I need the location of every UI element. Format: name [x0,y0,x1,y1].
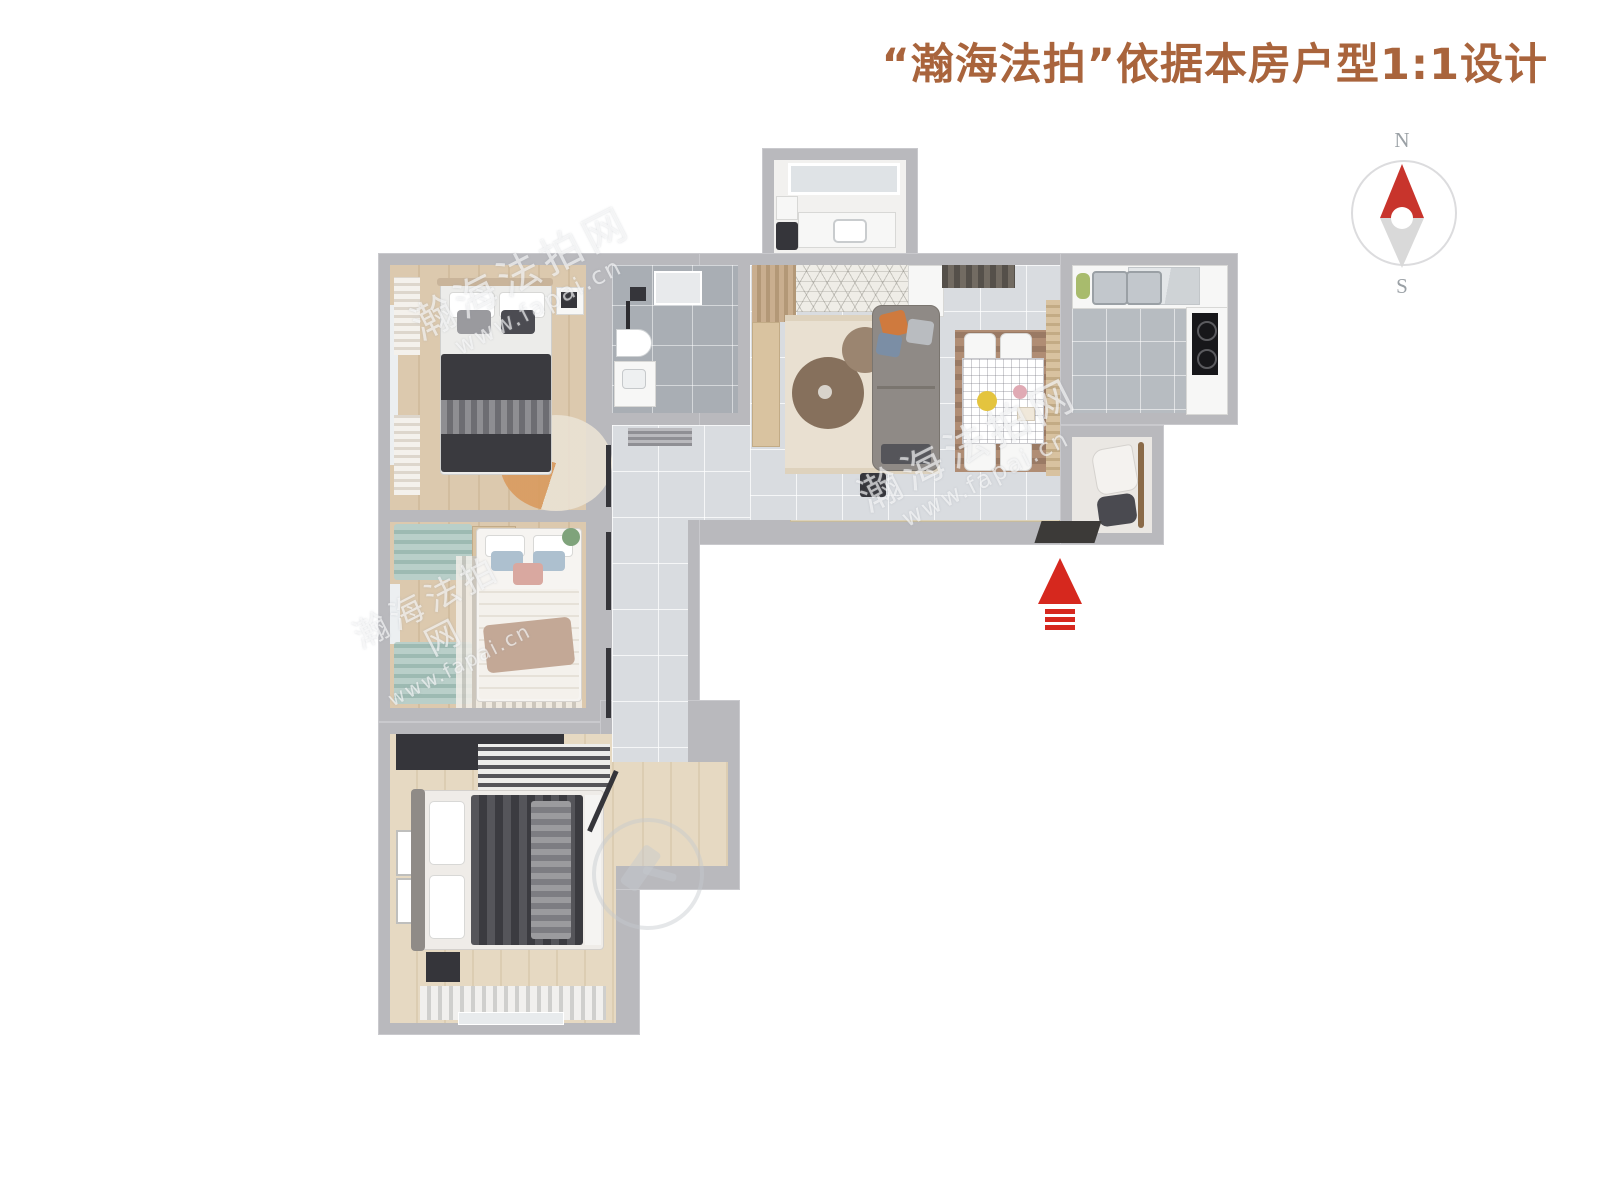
bedroom2-floor [390,522,586,708]
bedroom3-window [458,1012,564,1025]
washing-machine [776,222,798,250]
plate-pink [1013,385,1027,399]
floor-plan: 瀚海法拍网 www.fapai.cn 瀚海法拍网 www.fapai.cn 瀚海… [0,0,1600,1200]
bed-cushion [513,563,543,585]
sofa [872,305,940,471]
dining-chair [1000,440,1032,471]
dining-chair [964,440,996,471]
shower-head-icon [630,287,646,301]
cooktop [1192,313,1218,375]
bedroom1-curtain-bottom [394,415,420,495]
bedroom1-nightstand [556,287,584,315]
kitchen-tile-floor [1072,307,1186,413]
coat-rack-pole [1138,442,1144,528]
bed-throw [441,400,551,434]
nightstand-decor [561,292,577,308]
sofa-throw [881,444,931,464]
kitchen-floor [1072,265,1226,413]
bedroom2-window [390,584,400,644]
bathroom2-floor [612,265,738,413]
bed-blanket [483,617,576,674]
bathroom-sink-basin [833,219,867,243]
burner [1197,349,1217,369]
bed-throw [531,801,571,939]
bed-cushion [501,310,535,334]
toilet [616,329,652,357]
bedroom3-floor [390,734,616,1023]
table-decor [818,385,832,399]
bedroom3-nightstand [426,952,460,982]
bed-pillow [429,875,465,939]
wood-slat-partition [1046,300,1060,476]
ceiling-beam [942,265,1015,288]
bedroom3-bed [412,790,604,950]
bathroom-shelf [776,196,798,220]
sofa-pillow-gray [905,318,934,345]
bathroom-window [788,163,900,195]
bedroom1-floor [390,265,586,510]
sofa-pillow-blue [875,332,902,358]
kitchen-sink [1092,271,1128,305]
floor-plan-canvas: “瀚海法拍”依据本房户型1:1设计 N S [0,0,1600,1200]
kitchen-sink [1126,271,1162,305]
bathroom2-skylight [654,271,702,305]
entry-alcove-floor [1072,437,1152,533]
bed-cushion [457,310,491,334]
corridor-doorframe [606,445,611,507]
vanity-sink [622,369,646,389]
burner [1197,321,1217,341]
kitchen-plant [1076,273,1090,299]
dining-table [962,358,1044,444]
ceiling-vent [628,428,692,446]
plate-yellow [977,391,997,411]
corridor-doorframe [606,532,611,610]
bed-headboard [411,789,425,951]
bedroom3-rug [478,744,610,792]
bedroom1-bed [440,283,552,475]
bathroom-top-floor [774,160,906,253]
bed-pillow [429,801,465,865]
living-room-floor [750,265,1060,520]
side-table [860,473,886,497]
living-curtain [752,265,796,322]
bedroom1-curtain-top [394,277,420,355]
bed-headboard [437,278,553,286]
sofa-seat-line [877,386,935,389]
bedroom2-plant [562,528,580,546]
bathroom-vanity [798,212,896,248]
gavel-handle [642,866,677,883]
bedroom2-bed [476,528,582,702]
hanging-coat [1090,444,1139,497]
table-decor-small [1017,407,1035,421]
tv-cabinet [752,322,780,447]
bag [1096,493,1138,528]
entry-door-threshold [1034,521,1101,543]
corridor-doorframe [606,648,611,718]
